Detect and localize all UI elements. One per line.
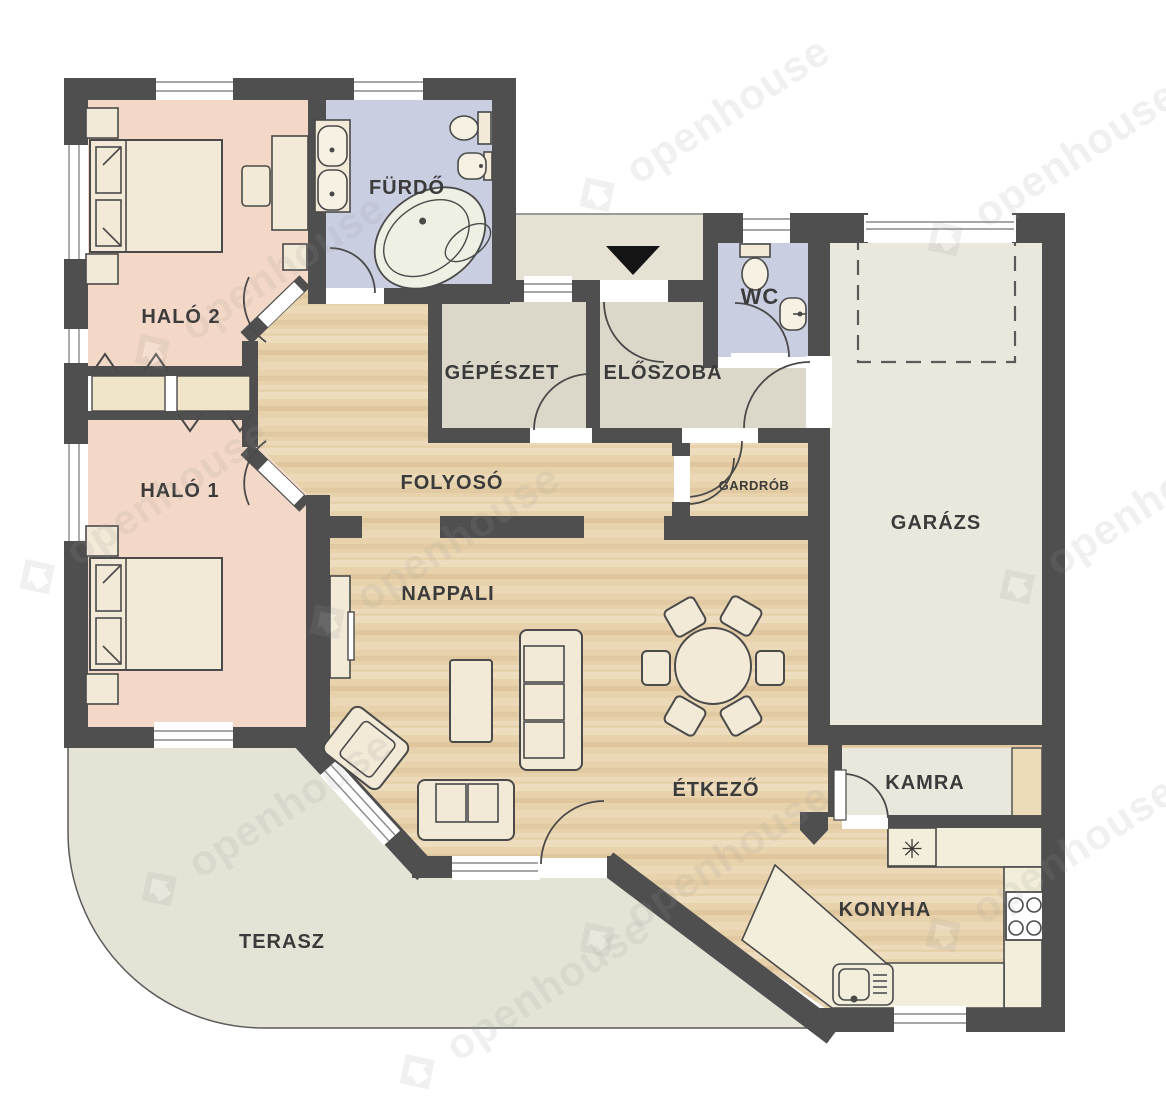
window-entrance [524,276,572,302]
label-furdo: FÜRDŐ [369,176,445,199]
pillow-icon [96,147,121,193]
label-halo2: HALÓ 2 [141,304,220,328]
window-konyha-bottom [894,1006,966,1032]
sofa-2seat-icon [418,780,514,840]
label-folyoso: FOLYOSÓ [401,470,504,494]
nightstand-icon [86,674,118,704]
sink-icon [318,170,347,210]
window-halo2-left [60,145,88,259]
sofa-3seat-icon [520,630,582,770]
dresser-icon [272,136,308,230]
label-garazs: GARÁZS [891,511,981,534]
window-furdo-top [354,74,423,100]
window-left-mid [60,329,88,363]
coffee-table-icon [450,660,492,742]
label-eloszoba: ELŐSZOBA [603,361,722,384]
window-halo1-left [60,444,88,541]
stove-icon [1006,892,1044,940]
sink-icon [318,126,347,166]
label-terasz: TERASZ [239,931,325,953]
floor-plan-svg: ✳ [0,0,1166,1054]
label-gardrob: GARDRÓB [719,478,790,493]
tv-cabinet-icon [330,576,354,678]
garage-door [864,215,1016,242]
label-nappali: NAPPALI [401,583,494,605]
window-halo2-top [156,74,233,100]
dining-chair-icon [642,651,670,685]
dining-table-icon [675,628,751,704]
chair-icon [242,166,270,206]
label-gepeszet: GÉPÉSZET [445,361,560,384]
pillow-icon [96,618,121,664]
nightstand-icon [86,108,118,138]
window-nappali-south [452,856,540,880]
kitchen-sink-icon [833,964,893,1005]
garage-floor [830,243,1042,725]
window-wc-top [743,208,790,243]
dining-chair-icon [756,651,784,685]
label-konyha: KONYHA [839,899,932,921]
label-etkezo: ÉTKEZŐ [672,778,759,801]
closet-icon [177,376,250,411]
stool-icon [283,244,307,270]
closet-icon [92,376,165,411]
kamra-shelf [1012,748,1042,816]
pillow-icon [96,200,121,246]
label-kamra: KAMRA [885,772,964,794]
floor-plan-page: { "watermark": { "text": "openhouse" }, … [0,0,1166,1054]
corner-sink-icon [780,298,806,330]
tv-icon [348,612,354,660]
label-halo1: HALÓ 1 [140,478,219,502]
nightstand-icon [86,526,118,556]
nightstand-icon [86,254,118,284]
label-wc: WC [741,284,780,309]
pillow-icon [96,565,121,611]
window-halo1-bottom [154,722,233,748]
fridge-symbol: ✳ [901,834,923,864]
bidet-icon [458,152,492,180]
